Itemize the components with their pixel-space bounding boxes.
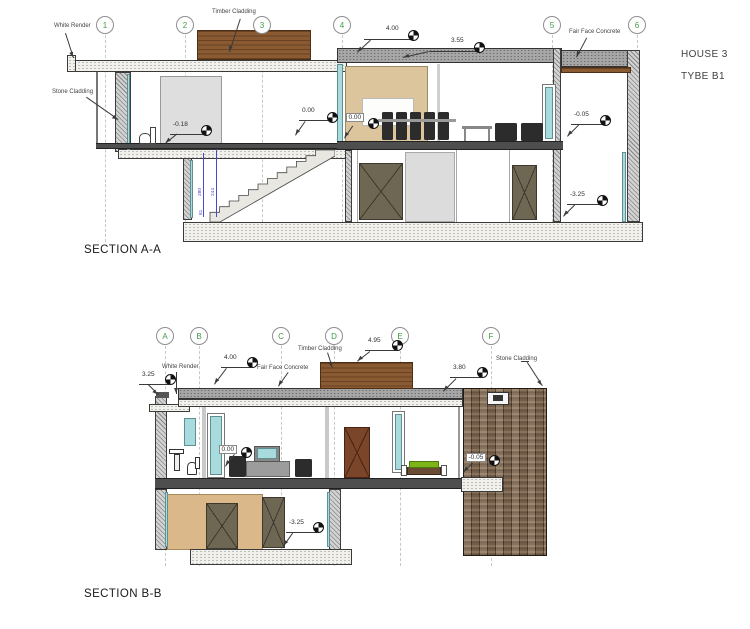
level-roof-high: 4.95 xyxy=(368,337,381,344)
label-fair-face-concrete: Fair Face Concrete xyxy=(257,365,308,371)
vent-grille xyxy=(493,395,503,401)
main-left-lower-wall xyxy=(345,150,352,222)
bed-base xyxy=(407,467,441,475)
leader-stone-cladding xyxy=(527,362,543,386)
stone-cladding-wall xyxy=(463,388,547,556)
main-left-glazing xyxy=(337,64,343,142)
nightstand xyxy=(441,465,447,476)
label-timber-cladding: Timber Cladding xyxy=(298,346,342,352)
level-symbol xyxy=(597,195,608,206)
level-symbol xyxy=(241,447,252,458)
level-parapet: 3.25 xyxy=(142,371,155,378)
lower-right-wall xyxy=(329,489,341,550)
lower-left-glazing xyxy=(165,492,168,547)
level-symbol xyxy=(408,30,419,41)
level-wc: -0.18 xyxy=(173,121,188,128)
roof-slab-gray xyxy=(178,388,463,399)
left-wall-glazing xyxy=(127,74,130,150)
level-ground: 0.00 xyxy=(219,445,237,454)
lower-door-2 xyxy=(262,497,285,548)
level-leader xyxy=(214,368,227,385)
leader-white-render xyxy=(176,372,177,394)
level-leader xyxy=(295,121,306,135)
grid-bubble-3: 3 xyxy=(253,16,271,34)
stair-dim-244: 244 xyxy=(211,188,216,196)
level-basement: -3.25 xyxy=(289,519,304,526)
stair-dim-280: 280 xyxy=(198,188,203,196)
foundation-slab-b xyxy=(190,549,352,565)
mid-floor-slab xyxy=(337,141,563,150)
office-chair xyxy=(295,459,312,477)
floor-slab xyxy=(155,478,463,489)
bed-mattress xyxy=(409,461,439,468)
dining-chair xyxy=(424,112,435,140)
drawing-canvas: 1 2 3 4 5 6 280 244 81 xyxy=(0,0,750,629)
bedroom-door xyxy=(344,427,370,478)
right-wall-edge xyxy=(458,407,460,478)
level-line xyxy=(571,124,604,125)
lower-door-1 xyxy=(206,503,238,549)
label-white-render: White Render xyxy=(162,364,199,370)
level-terrace: -0.05 xyxy=(466,453,486,462)
level-symbol xyxy=(165,374,176,385)
grid-bubble-c: C xyxy=(272,327,290,345)
dining-chair xyxy=(410,112,421,140)
desk xyxy=(246,461,290,477)
nightstand xyxy=(401,465,407,476)
lower-right-glazing xyxy=(327,492,330,547)
level-roof: 4.00 xyxy=(224,354,237,361)
level-roof: 4.00 xyxy=(386,25,399,32)
grid-bubble-d: D xyxy=(325,327,343,345)
level-terrace: -0.05 xyxy=(574,111,589,118)
left-wing-roof-slab xyxy=(68,60,347,72)
grid-bubble-6: 6 xyxy=(628,16,646,34)
level-symbol xyxy=(313,522,324,533)
label-stone-cladding: Stone Cladding xyxy=(496,356,537,362)
terrace-ledge xyxy=(461,477,503,492)
label-timber-cladding: Timber Cladding xyxy=(212,9,256,15)
roof-slab-white xyxy=(178,399,463,407)
lower-double-door xyxy=(359,163,403,220)
grid-bubble-2: 2 xyxy=(176,16,194,34)
dining-chair xyxy=(382,112,393,140)
level-symbol xyxy=(368,118,379,129)
dining-table xyxy=(378,119,456,122)
armchair xyxy=(495,123,517,141)
wall-stud xyxy=(357,150,358,222)
level-symbol xyxy=(474,42,485,53)
leader-stone-cladding xyxy=(86,97,119,120)
level-basement: -3.25 xyxy=(570,191,585,198)
section-b-title: SECTION B-B xyxy=(84,588,162,600)
left-edge-line xyxy=(96,72,98,145)
level-ground-a: 0.00 xyxy=(302,107,315,114)
interior-wall xyxy=(325,407,329,478)
window-pane xyxy=(395,414,402,470)
label-white-render: White Render xyxy=(54,23,91,29)
level-line xyxy=(567,204,601,205)
level-line xyxy=(429,51,478,52)
wing-glazing xyxy=(622,152,626,222)
lower-gray-panel xyxy=(405,152,455,222)
type-label: TYBE B1 xyxy=(681,71,725,82)
side-table-leg xyxy=(464,129,466,141)
monitor-screen xyxy=(257,448,277,459)
staircase xyxy=(200,146,335,222)
dining-chair xyxy=(438,112,449,140)
level-ground-b: 0.00 xyxy=(346,113,364,122)
grid-bubble-a: A xyxy=(156,327,174,345)
foundation-slab-a xyxy=(183,222,643,242)
level-leader xyxy=(148,384,159,395)
label-fair-face-concrete: Fair Face Concrete xyxy=(569,29,620,35)
level-roof2: 3.55 xyxy=(451,37,464,44)
leader-fair-face-concrete xyxy=(278,372,289,386)
lower-single-door xyxy=(512,165,537,220)
level-symbol xyxy=(600,115,611,126)
level-symbol xyxy=(477,367,488,378)
label-stone-cladding: Stone Cladding xyxy=(52,89,93,95)
stair-dim-81: 81 xyxy=(199,210,204,215)
wall-stud xyxy=(456,150,457,222)
level-symbol xyxy=(247,357,258,368)
grid-bubble-5: 5 xyxy=(543,16,561,34)
level-symbol xyxy=(327,112,338,123)
level-leader xyxy=(357,351,370,362)
toilet-bowl xyxy=(139,133,151,144)
stair-dim-line-2 xyxy=(216,149,217,217)
dining-chair xyxy=(396,112,407,140)
level-roof-low: 3.80 xyxy=(453,364,466,371)
level-line xyxy=(139,384,169,385)
stair-wall-glazing xyxy=(190,160,193,218)
section-a-title: SECTION A-A xyxy=(84,244,161,256)
armchair xyxy=(521,123,543,141)
level-leader xyxy=(563,205,575,217)
glass-door-pane xyxy=(545,87,553,139)
level-symbol xyxy=(201,125,212,136)
level-symbol xyxy=(392,340,403,351)
bathroom-wall xyxy=(202,407,206,478)
house-label: HOUSE 3 xyxy=(681,49,728,60)
wing-right-column xyxy=(627,50,640,222)
level-leader xyxy=(567,125,579,137)
timber-cladding-box xyxy=(197,30,311,60)
grid-bubble-f: F xyxy=(482,327,500,345)
sink-pedestal xyxy=(174,454,180,471)
level-symbol xyxy=(489,455,500,466)
stair-dim-line-1 xyxy=(203,153,204,217)
office-chair xyxy=(229,456,246,477)
grid-bubble-b: B xyxy=(190,327,208,345)
bath-mirror xyxy=(184,418,196,446)
wall-stud xyxy=(509,150,510,222)
wing-timber-strip xyxy=(561,67,631,73)
grid-bubble-4: 4 xyxy=(333,16,351,34)
toilet-tank xyxy=(195,457,200,469)
side-table-leg xyxy=(488,129,490,141)
grid-bubble-1: 1 xyxy=(96,16,114,34)
